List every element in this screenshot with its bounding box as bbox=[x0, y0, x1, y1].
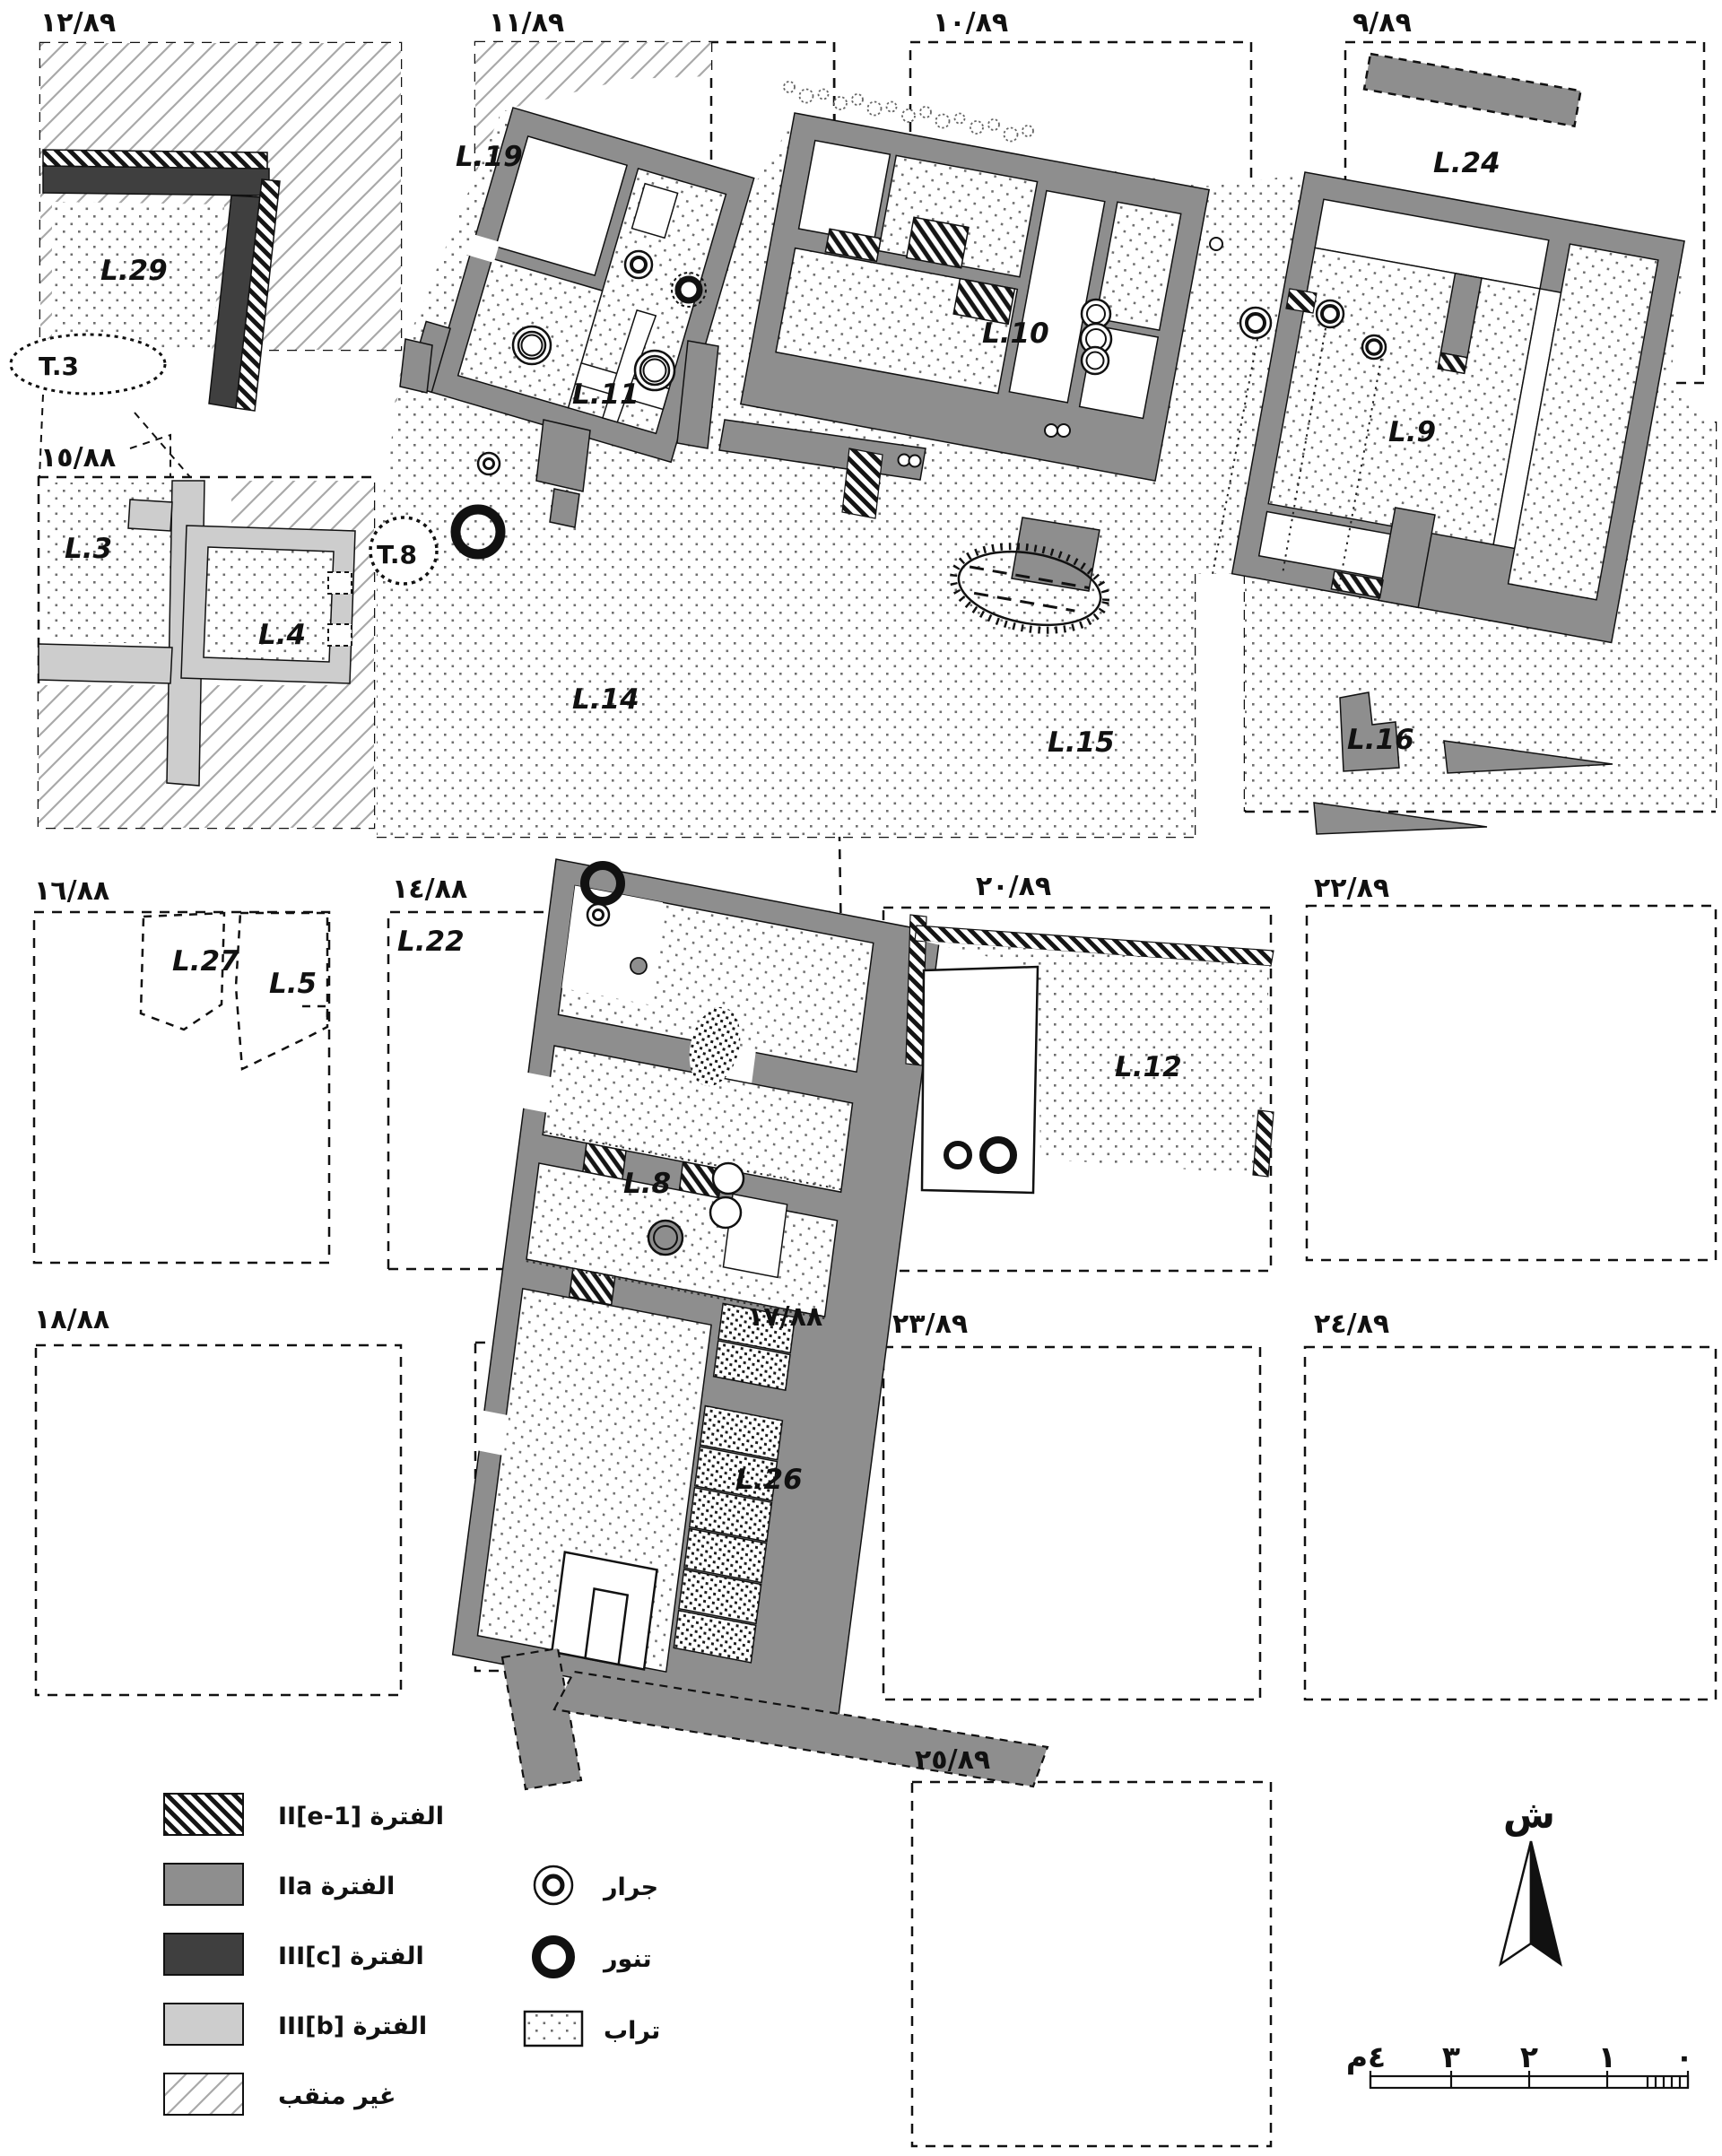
jar bbox=[1082, 347, 1109, 374]
l11-pier bbox=[536, 420, 590, 491]
legend-label-tannur: تنور bbox=[602, 1945, 652, 1973]
locus-label-l26: L.26 bbox=[735, 1464, 803, 1496]
t3-oval bbox=[11, 335, 165, 394]
legend-swatch-III-c bbox=[164, 1934, 243, 1975]
legend-label-IIa: الفترة IIa bbox=[278, 1873, 395, 1900]
jar bbox=[478, 453, 500, 474]
excavation-plan-svg: ١٢/٨٩ ١١/٨٩ ١٠/٨٩ ٩/٨٩ ١٥/٨٨ ١٦/٨٨ ١٤/٨٨… bbox=[0, 0, 1722, 2156]
grid-label-15-88: ١٥/٨٨ bbox=[40, 442, 116, 474]
grid-label-17-88: ١٧/٨٨ bbox=[747, 1301, 822, 1333]
jar-gray bbox=[648, 1221, 683, 1255]
jar bbox=[587, 904, 609, 926]
legend-label-jar: جرار bbox=[602, 1873, 658, 1901]
grid-label-22-89: ٢٢/٨٩ bbox=[1314, 873, 1389, 904]
locus-label-l14: L.14 bbox=[572, 683, 639, 716]
locus-label-l24: L.24 bbox=[1433, 147, 1500, 179]
legend-swatch-unexcavated bbox=[164, 2073, 243, 2115]
grid-label-14-88: ١٤/٨٨ bbox=[392, 874, 467, 905]
jar bbox=[635, 351, 674, 390]
grid-box-22-89 bbox=[1307, 906, 1716, 1260]
legend-label-soil: تراب bbox=[604, 2017, 660, 2045]
building-l9 bbox=[1232, 172, 1684, 643]
l5-notch bbox=[302, 1006, 327, 1027]
legend-tannur-icon bbox=[536, 1940, 570, 1974]
locus-label-l19: L.19 bbox=[456, 141, 523, 173]
l15-wall-stub bbox=[1012, 517, 1100, 591]
grid-label-18-88: ١٨/٨٨ bbox=[34, 1304, 109, 1335]
jar bbox=[1362, 335, 1386, 359]
small-circle-feature bbox=[1210, 238, 1222, 250]
grid-label-24-89: ٢٤/٨٩ bbox=[1314, 1308, 1389, 1340]
t3-connector-east bbox=[135, 413, 190, 477]
scale-label-0: ٠ bbox=[1675, 2039, 1693, 2074]
scale-label-3: ٣ bbox=[1442, 2039, 1460, 2074]
small-IIe1-stub bbox=[1286, 289, 1317, 313]
grid-label-20-89: ٢٠/٨٩ bbox=[976, 871, 1051, 902]
grid-label-12-89: ١٢/٨٩ bbox=[40, 7, 116, 39]
grid-label-25-89: ٢٥/٨٩ bbox=[915, 1744, 990, 1776]
legend-label-unexcavated: غير منقب bbox=[278, 2082, 396, 2110]
stone-feature bbox=[631, 958, 647, 974]
locus-label-l11: L.11 bbox=[572, 378, 639, 411]
locus-label-l8: L.8 bbox=[623, 1168, 671, 1200]
locus-label-l9: L.9 bbox=[1388, 416, 1436, 448]
l12-tannur-large bbox=[983, 1140, 1013, 1170]
trench-label-t3: T.3 bbox=[39, 352, 79, 381]
jar bbox=[1317, 300, 1344, 327]
grid-box-25-89 bbox=[912, 1782, 1271, 2146]
grid-label-9-89: ٩/٨٩ bbox=[1352, 7, 1412, 39]
locus-label-l5: L.5 bbox=[269, 968, 317, 1000]
wall-IIe1-horizontal bbox=[43, 150, 267, 169]
jar-pair bbox=[899, 455, 921, 467]
locus-label-l29: L.29 bbox=[100, 255, 168, 287]
legend-jar-icon bbox=[535, 1866, 572, 1904]
l12-area bbox=[906, 915, 1274, 1193]
legend-periods: الفترة II[e-1] الفترة IIa الفترة III[c] … bbox=[164, 1794, 444, 2115]
jar bbox=[625, 251, 652, 278]
l4-connector-dashes bbox=[130, 435, 170, 477]
grid-box-18-88 bbox=[36, 1345, 401, 1695]
grid-label-11-89: ١١/٨٩ bbox=[489, 7, 564, 39]
lb-west-doorway-a bbox=[520, 1072, 552, 1113]
l4-door-gap-south bbox=[328, 624, 352, 646]
l15-wall-IIe1 bbox=[842, 448, 883, 518]
legend-label-III-c: الفترة III[c] bbox=[278, 1943, 424, 1970]
locus-label-l27: L.27 bbox=[172, 945, 239, 978]
l12-tannur-small bbox=[946, 1143, 970, 1167]
jar bbox=[513, 326, 551, 364]
north-label: ش bbox=[1503, 1793, 1555, 1837]
grid-label-10-89: ١٠/٨٩ bbox=[933, 7, 1008, 39]
grid-box-24-89 bbox=[1305, 1347, 1716, 1700]
trench-label-t8: T.8 bbox=[377, 540, 417, 569]
legend-symbols: جرار تنور تراب bbox=[525, 1866, 660, 2046]
north-arrow-left bbox=[1500, 1841, 1531, 1964]
scale-label-4m: ٤م bbox=[1346, 2039, 1386, 2074]
site-plan-page: ١٢/٨٩ ١١/٨٩ ١٠/٨٩ ٩/٨٩ ١٥/٨٨ ١٦/٨٨ ١٤/٨٨… bbox=[0, 0, 1722, 2156]
locus-label-l22: L.22 bbox=[397, 926, 465, 958]
wall-IIIc-horizontal bbox=[43, 166, 269, 196]
lb-west-doorway-b bbox=[475, 1410, 509, 1456]
scale-label-2: ٢ bbox=[1520, 2039, 1538, 2074]
locus-label-l16: L.16 bbox=[1347, 724, 1414, 756]
legend-label-III-b: الفترة III[b] bbox=[278, 2013, 427, 2040]
l4-door-gap-north bbox=[328, 572, 352, 594]
north-arrow: ش bbox=[1500, 1793, 1561, 1964]
legend-swatch-II-e-1 bbox=[164, 1794, 243, 1835]
grid-label-23-89: ٢٣/٨٩ bbox=[892, 1308, 968, 1340]
jar bbox=[1240, 308, 1271, 338]
legend-soil-icon bbox=[525, 2012, 582, 2046]
legend-label-II-e-1: الفترة II[e-1] bbox=[278, 1803, 444, 1830]
locus-label-l4: L.4 bbox=[258, 619, 306, 651]
l10-room-northwest bbox=[799, 141, 891, 243]
locus-label-l10: L.10 bbox=[982, 317, 1049, 350]
installation-circle bbox=[710, 1197, 741, 1228]
scale-label-1: ١ bbox=[1598, 2039, 1616, 2074]
wall-IIIb-stub bbox=[128, 500, 172, 531]
unexcavated-15-88-top bbox=[231, 481, 374, 531]
scale-bar: ٤م ٣ ٢ ١ ٠ bbox=[1346, 2039, 1693, 2088]
north-arrow-right bbox=[1531, 1841, 1561, 1964]
legend-swatch-IIa bbox=[164, 1864, 243, 1905]
installation-circle bbox=[713, 1163, 744, 1194]
building-l22-l8-l26 bbox=[449, 858, 941, 1728]
grid-label-16-88: ١٦/٨٨ bbox=[34, 875, 109, 907]
legend-swatch-III-b bbox=[164, 2004, 243, 2045]
l11-pier-stub bbox=[550, 489, 579, 527]
locus-label-l15: L.15 bbox=[1048, 726, 1115, 759]
locus-label-l3: L.3 bbox=[65, 533, 112, 565]
l11-annex-west bbox=[400, 339, 432, 393]
locus-label-l12: L.12 bbox=[1115, 1051, 1182, 1083]
l24-wall-bar bbox=[1364, 54, 1580, 126]
grid-box-23-89 bbox=[883, 1347, 1260, 1700]
wall-IIIb-horizontal bbox=[39, 644, 172, 683]
unexcavated-15-88-bottom bbox=[39, 685, 374, 828]
